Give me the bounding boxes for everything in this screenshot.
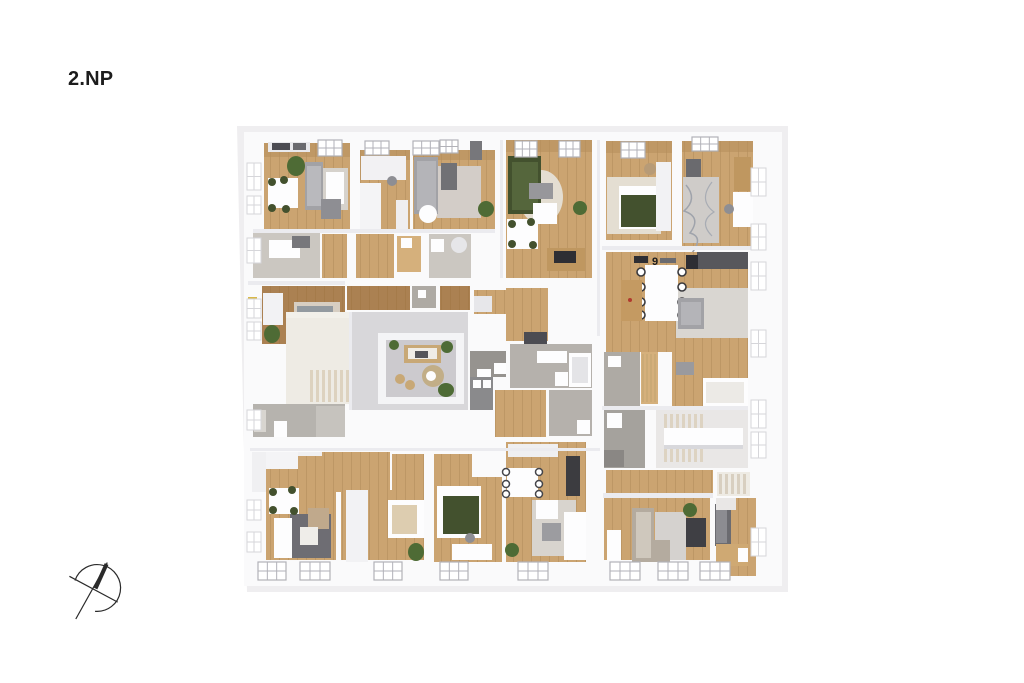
svg-text:9: 9 (652, 256, 658, 268)
